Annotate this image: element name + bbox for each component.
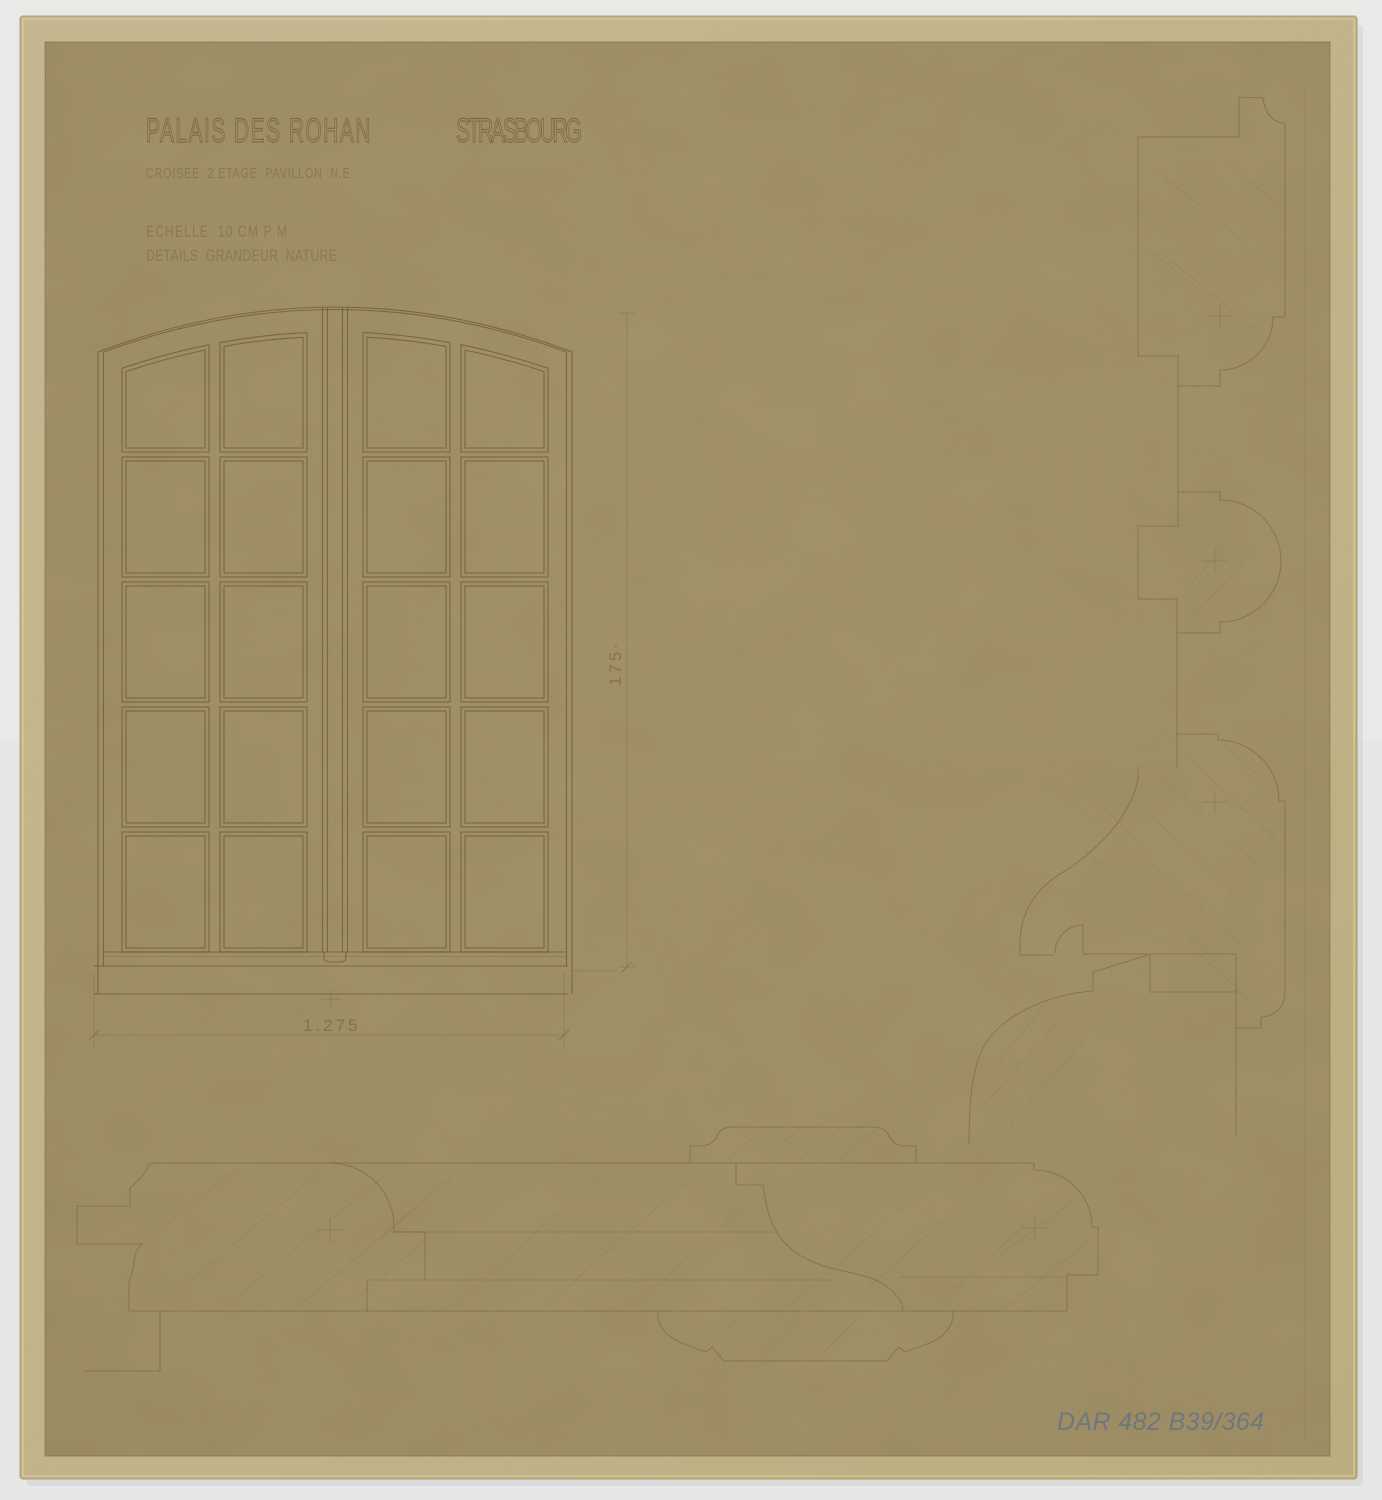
svg-text:1.275: 1.275 <box>303 1016 361 1035</box>
svg-text:STRASBOURG: STRASBOURG <box>456 111 582 149</box>
svg-text:DAR 482 B39/364: DAR 482 B39/364 <box>1057 1408 1265 1436</box>
svg-text:DETAILS GRANDEUR NATURE: DETAILS GRANDEUR NATURE <box>146 247 337 265</box>
svg-text:PALAIS DES ROHAN: PALAIS DES ROHAN <box>146 111 370 149</box>
svg-text:CROISEE 2 ETAGE PAVILLON N.: CROISEE 2 ETAGE PAVILLON N.E <box>146 164 350 181</box>
svg-text:ECHELLE 10 CM P M: ECHELLE 10 CM P M <box>146 223 287 241</box>
